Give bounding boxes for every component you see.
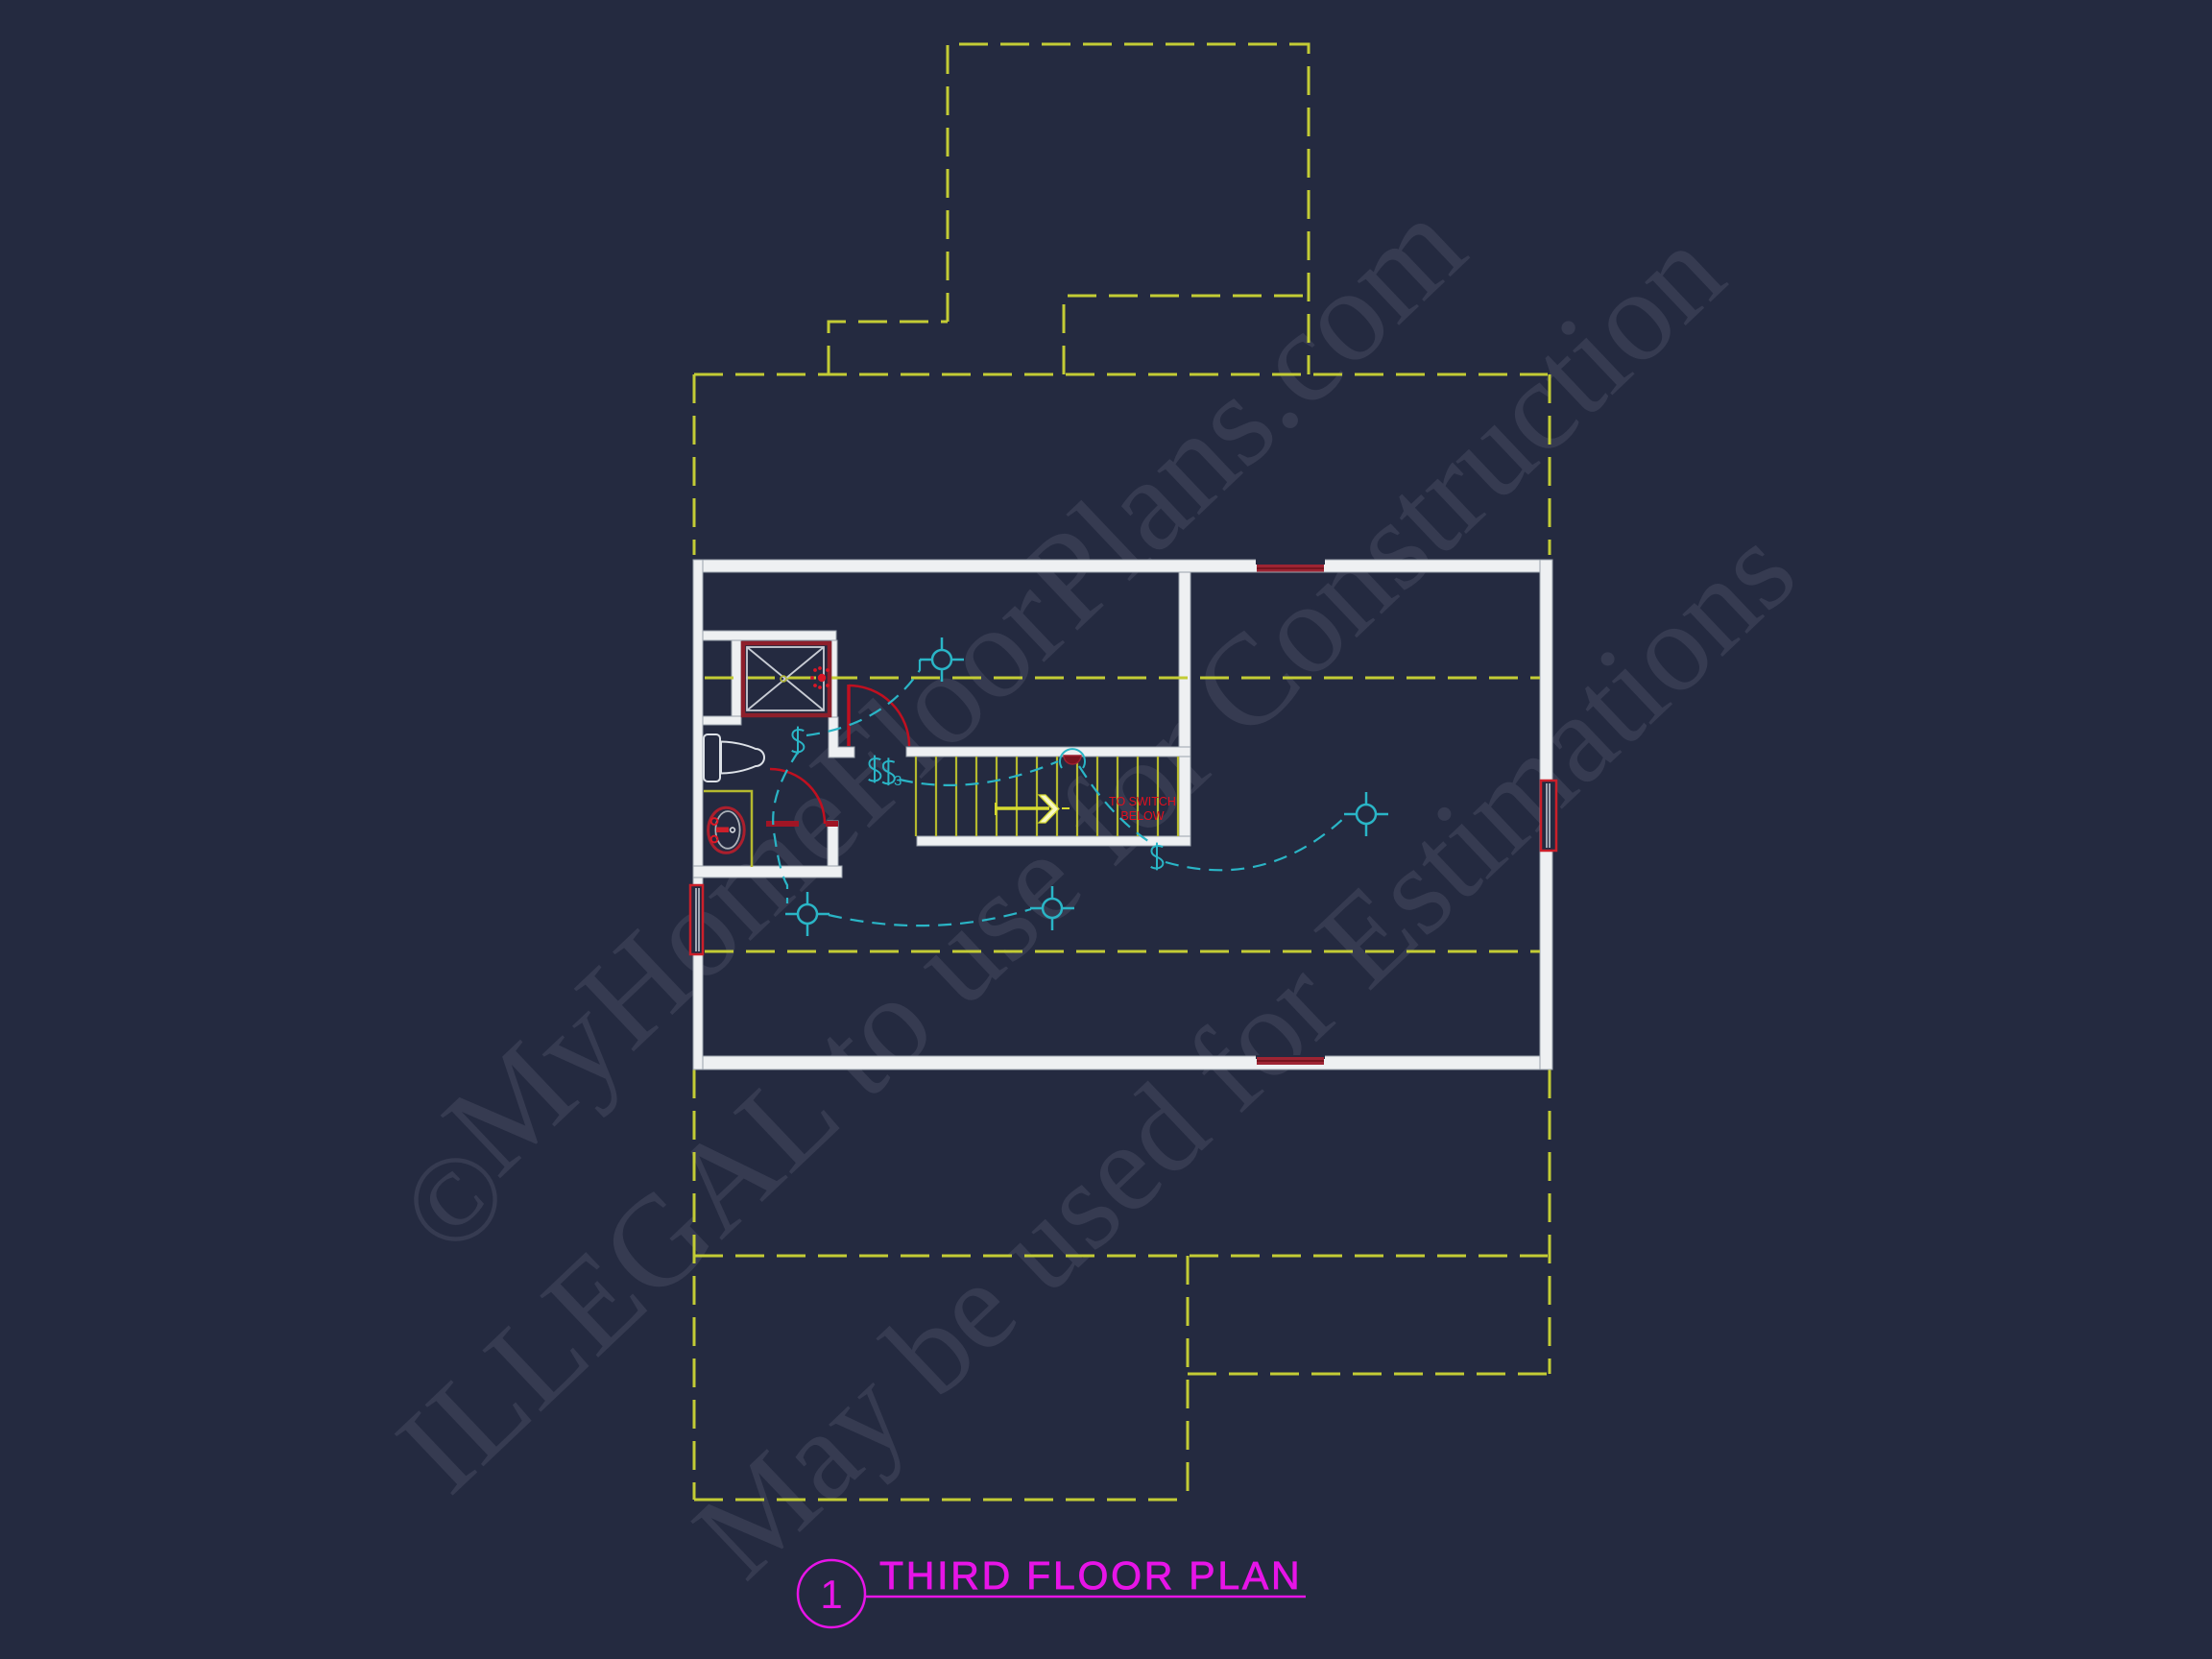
svg-text:1: 1 bbox=[820, 1572, 842, 1617]
svg-text:3: 3 bbox=[894, 773, 902, 789]
svg-text:THIRD FLOOR PLAN: THIRD FLOOR PLAN bbox=[879, 1553, 1302, 1598]
svg-text:TO SWITCH: TO SWITCH bbox=[1109, 795, 1176, 808]
svg-text:BELOW: BELOW bbox=[1120, 809, 1164, 823]
